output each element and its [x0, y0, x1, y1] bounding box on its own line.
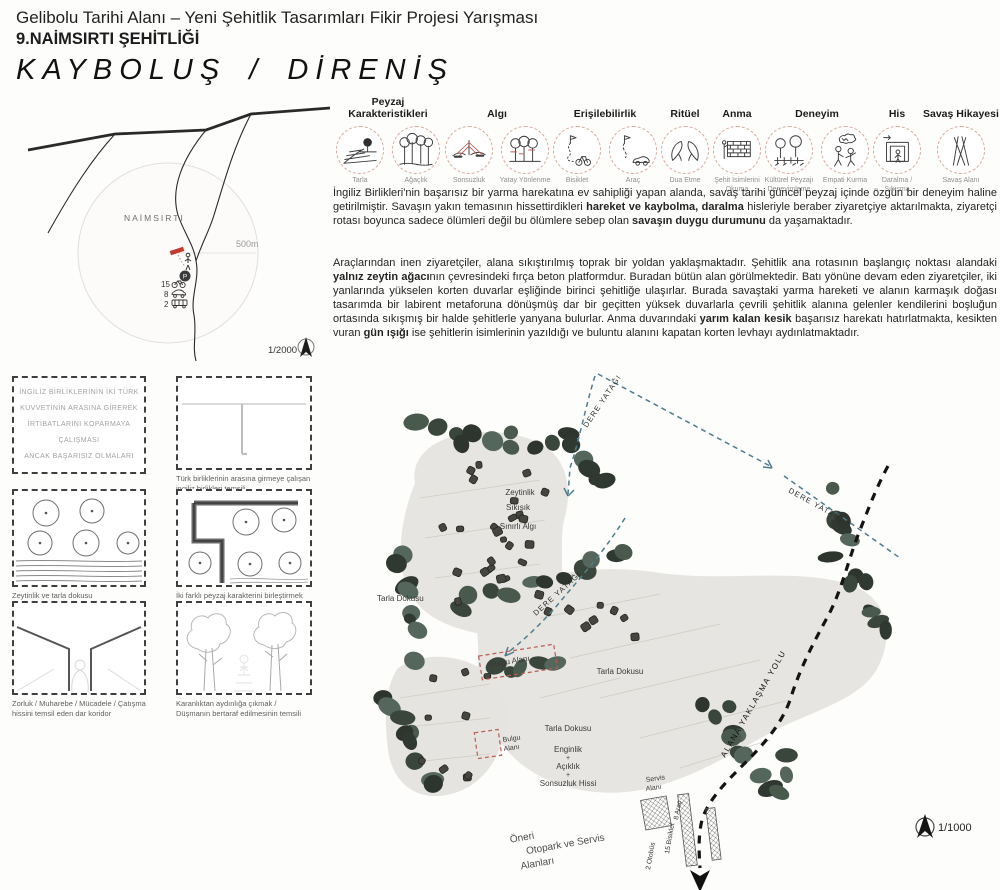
- concept-label: Algı: [487, 94, 507, 120]
- concept-group: DeneyimKültürel Peyzajı DeneyimlemeEmpat…: [763, 94, 871, 195]
- svg-text:+: +: [516, 514, 520, 521]
- wall-icon: [713, 126, 761, 174]
- text-segment: savaşın duygu durumunu: [632, 215, 766, 227]
- parking-note: Öneri Otopark ve Servis Alanları: [509, 818, 608, 874]
- sketch-caption: İki farklı peyzaj karakterini birleştirm…: [176, 591, 312, 601]
- horizontal-icon: [501, 126, 549, 174]
- concept-label: Ritüel: [670, 94, 699, 120]
- location-map: NAİMSIRTI 500m P 15 8 2: [18, 103, 330, 363]
- text-segment: ise şehitlerin isimlerinin yazıldığı ve …: [409, 327, 860, 339]
- text-segment: gün ışığı: [364, 327, 409, 339]
- svg-text:15 Bisiklet: 15 Bisiklet: [664, 823, 676, 855]
- svg-text:Alanları: Alanları: [520, 856, 555, 873]
- para1-text: İngiliz Birlikleri'nin başarısız bir yar…: [333, 187, 997, 229]
- board-title: 9.NAİMSIRTI ŞEHİTLİĞİ: [16, 30, 199, 49]
- infinity-icon: [445, 126, 493, 174]
- svg-text:Sınırlı Algı: Sınırlı Algı: [500, 522, 536, 531]
- svg-text:Enginlik: Enginlik: [554, 745, 583, 754]
- concept-group: Savaş HikayesiSavaş Alanı: [923, 94, 999, 194]
- woods-icon: [392, 126, 440, 174]
- service-area-box: [641, 796, 672, 830]
- concept-label: Anma: [722, 94, 751, 120]
- text-segment: yalnız zeytin ağacı: [333, 271, 430, 283]
- svg-text:2: 2: [164, 300, 169, 309]
- concept-group: AlgıSonsuzlukYatay Yönlenme: [443, 94, 551, 194]
- text-segment: yarım kalan kesik: [700, 313, 792, 325]
- concept-group: HisDaralma / Sıkışma: [871, 94, 923, 195]
- svg-text:Alanı: Alanı: [645, 784, 662, 793]
- sketch-olive-field: Zeytinlik ve tarla dokusu: [12, 489, 146, 601]
- sketch-corridor: Zorluk / Muharebe / Mücadele / Çatışma h…: [12, 601, 146, 719]
- concept-label: His: [889, 94, 905, 120]
- sketch-light: Karanlıktan aydınlığa çıkmak / Düşmanın …: [176, 601, 312, 719]
- concept-group: ErişilebilirlikBisikletAraç: [551, 94, 659, 194]
- north-arrow-icon: [298, 337, 314, 357]
- competition-title: Gelibolu Tarihi Alanı – Yeni Şehitlik Ta…: [16, 8, 538, 28]
- sketch-t-diagram: Türk birliklerinin arasına girmeye çalış…: [176, 376, 312, 494]
- svg-text:+: +: [566, 755, 570, 762]
- svg-text:15: 15: [161, 280, 170, 289]
- site-plan: DERE YATAĞI DERE YATAĞI DERE YATAĞI ALAN…: [340, 368, 1000, 890]
- concept-group: AnmaŞehit İsimlerini Okuma: [711, 94, 763, 195]
- field-texture-label: Tarla Dokusu: [597, 667, 644, 676]
- field-icon: [336, 126, 384, 174]
- sketch-caption: Zeytinlik ve tarla dokusu: [12, 591, 146, 601]
- pray-icon: [661, 126, 709, 174]
- plan-scale-label: 1/1000: [938, 822, 972, 834]
- concept-label: Deneyim: [795, 94, 839, 120]
- text-segment: Araçlarından inen ziyaretçiler, alana sı…: [333, 257, 997, 269]
- concept-group: RitüelDua Etme: [659, 94, 711, 194]
- svg-text:Otopark ve Servis: Otopark ve Servis: [525, 832, 605, 857]
- car-route-icon: [609, 126, 657, 174]
- concept-label: Savaş Hikayesi: [923, 94, 999, 120]
- svg-text:Açıklık: Açıklık: [556, 762, 581, 771]
- svg-text:Tarla Dokusu: Tarla Dokusu: [545, 724, 592, 733]
- place-label: NAİMSIRTI: [124, 213, 185, 223]
- svg-text:Sıkışık: Sıkışık: [506, 503, 531, 512]
- map-scale-label: 1/2000: [268, 345, 297, 356]
- empathy-icon: [821, 126, 869, 174]
- sketch-narrative: İNGİLİZ BİRLİKLERİNİN İKİ TÜRK KUVVETİNİ…: [12, 376, 146, 474]
- svg-text:8: 8: [164, 290, 169, 299]
- sketch-caption: Zorluk / Muharebe / Mücadele / Çatışma h…: [12, 699, 146, 719]
- concept-strip: Peyzaj KarakteristikleriTarlaAğaçlıkAlgı…: [333, 94, 997, 195]
- svg-text:Zeytinlik: Zeytinlik: [505, 488, 535, 497]
- parking-letter: P: [183, 274, 187, 281]
- text-segment: da yaşamaktadır.: [766, 215, 853, 227]
- text-segment: hareket ve kaybolma, daralma: [586, 201, 744, 213]
- svg-text:2 Otobüs: 2 Otobüs: [645, 841, 657, 870]
- svg-text:Öneri: Öneri: [509, 830, 535, 846]
- sketch-narrative-text: İNGİLİZ BİRLİKLERİNİN İKİ TÜRK KUVVETİNİ…: [14, 385, 144, 465]
- radius-label: 500m: [236, 239, 259, 249]
- parking-strip: [706, 808, 721, 861]
- sketch-merge-landscapes: İki farklı peyzaj karakterini birleştirm…: [176, 489, 312, 601]
- north-arrow-icon: [916, 814, 934, 838]
- svg-text:+: +: [566, 772, 570, 779]
- para2-text: Araçlarından inen ziyaretçiler, alana sı…: [333, 257, 997, 341]
- landscape-icon: [765, 126, 813, 174]
- concept-label: Erişilebilirlik: [574, 94, 636, 120]
- battlefield-icon: [937, 126, 985, 174]
- field-texture-label: Tarla Dokusu: [377, 594, 424, 603]
- svg-text:Sonsuzluk Hissi: Sonsuzluk Hissi: [540, 779, 597, 788]
- concept-title: KAYBOLUŞ / DİRENİŞ: [16, 54, 454, 87]
- stream-label: DERE YATAĞI: [581, 373, 623, 429]
- competition-board: Gelibolu Tarihi Alanı – Yeni Şehitlik Ta…: [0, 0, 1000, 890]
- bike-route-icon: [553, 126, 601, 174]
- concept-group: Peyzaj KarakteristikleriTarlaAğaçlık: [333, 94, 443, 194]
- sketch-caption: Karanlıktan aydınlığa çıkmak / Düşmanın …: [176, 699, 312, 719]
- concept-label: Peyzaj Karakteristikleri: [333, 94, 443, 120]
- road-arrow-icon: [690, 870, 710, 890]
- squeeze-icon: [873, 126, 921, 174]
